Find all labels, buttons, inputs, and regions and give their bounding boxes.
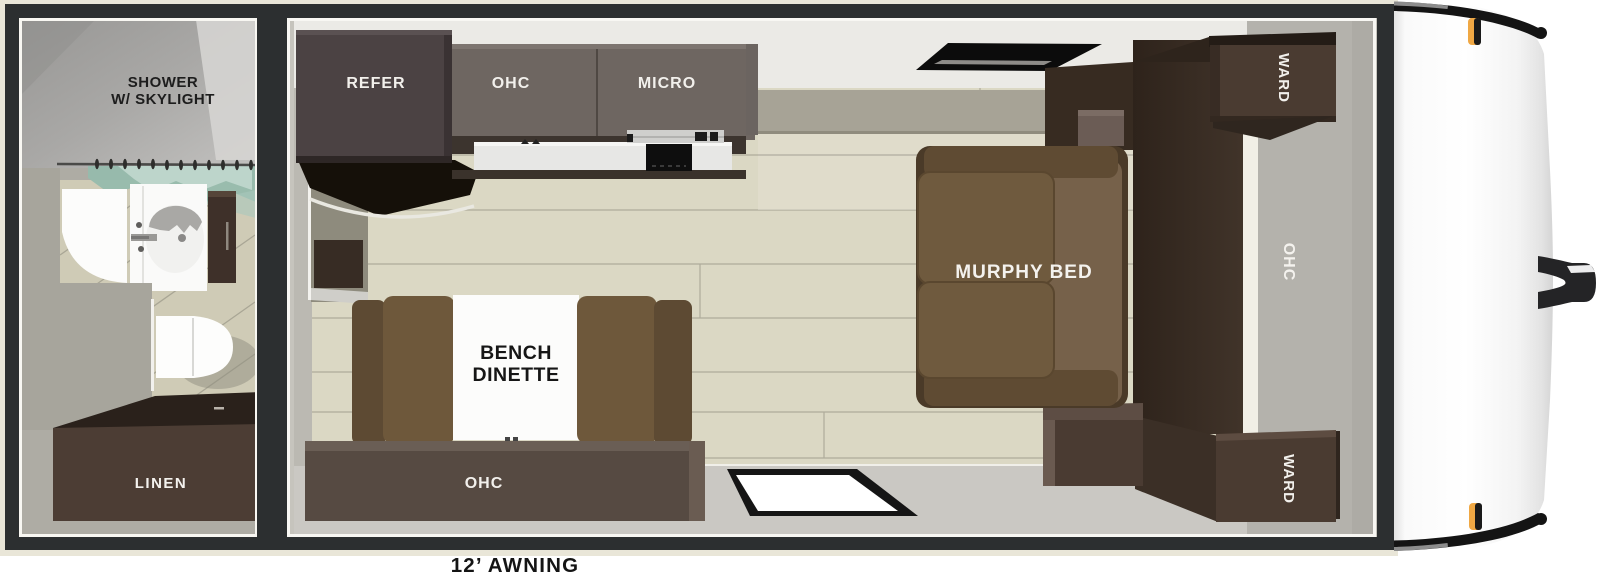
svg-text:12’ AWNING: 12’ AWNING — [451, 554, 580, 572]
svg-text:WARD: WARD — [1275, 53, 1292, 103]
svg-text:LINEN: LINEN — [135, 475, 188, 492]
svg-text:OHC: OHC — [492, 75, 531, 92]
svg-text:OHC: OHC — [465, 475, 504, 492]
svg-text:WARD: WARD — [1280, 454, 1297, 504]
svg-text:DINETTE: DINETTE — [473, 364, 560, 386]
svg-text:BENCH: BENCH — [480, 342, 552, 364]
svg-text:MURPHY BED: MURPHY BED — [955, 262, 1092, 283]
svg-text:W/ SKYLIGHT: W/ SKYLIGHT — [111, 91, 215, 108]
svg-text:REFER: REFER — [346, 75, 405, 92]
svg-text:SHOWER: SHOWER — [128, 74, 199, 91]
svg-text:MICRO: MICRO — [638, 75, 696, 92]
svg-text:OHC: OHC — [1280, 243, 1297, 282]
